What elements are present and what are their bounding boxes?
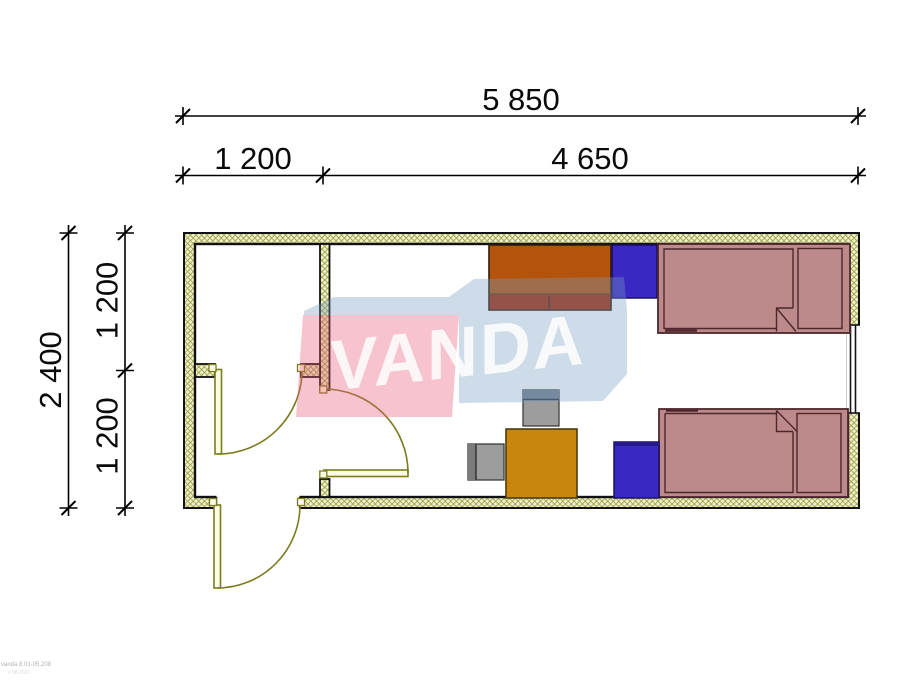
svg-text:v 08-2021: v 08-2021: [8, 670, 30, 676]
svg-text:4 650: 4 650: [551, 141, 629, 176]
svg-text:5 850: 5 850: [482, 82, 560, 117]
svg-text:1 200: 1 200: [90, 262, 125, 340]
svg-text:2 400: 2 400: [33, 331, 68, 409]
svg-text:1 200: 1 200: [90, 397, 125, 475]
svg-text:1 200: 1 200: [214, 141, 292, 176]
svg-text:vanda 8.01-05.208: vanda 8.01-05.208: [1, 662, 52, 668]
